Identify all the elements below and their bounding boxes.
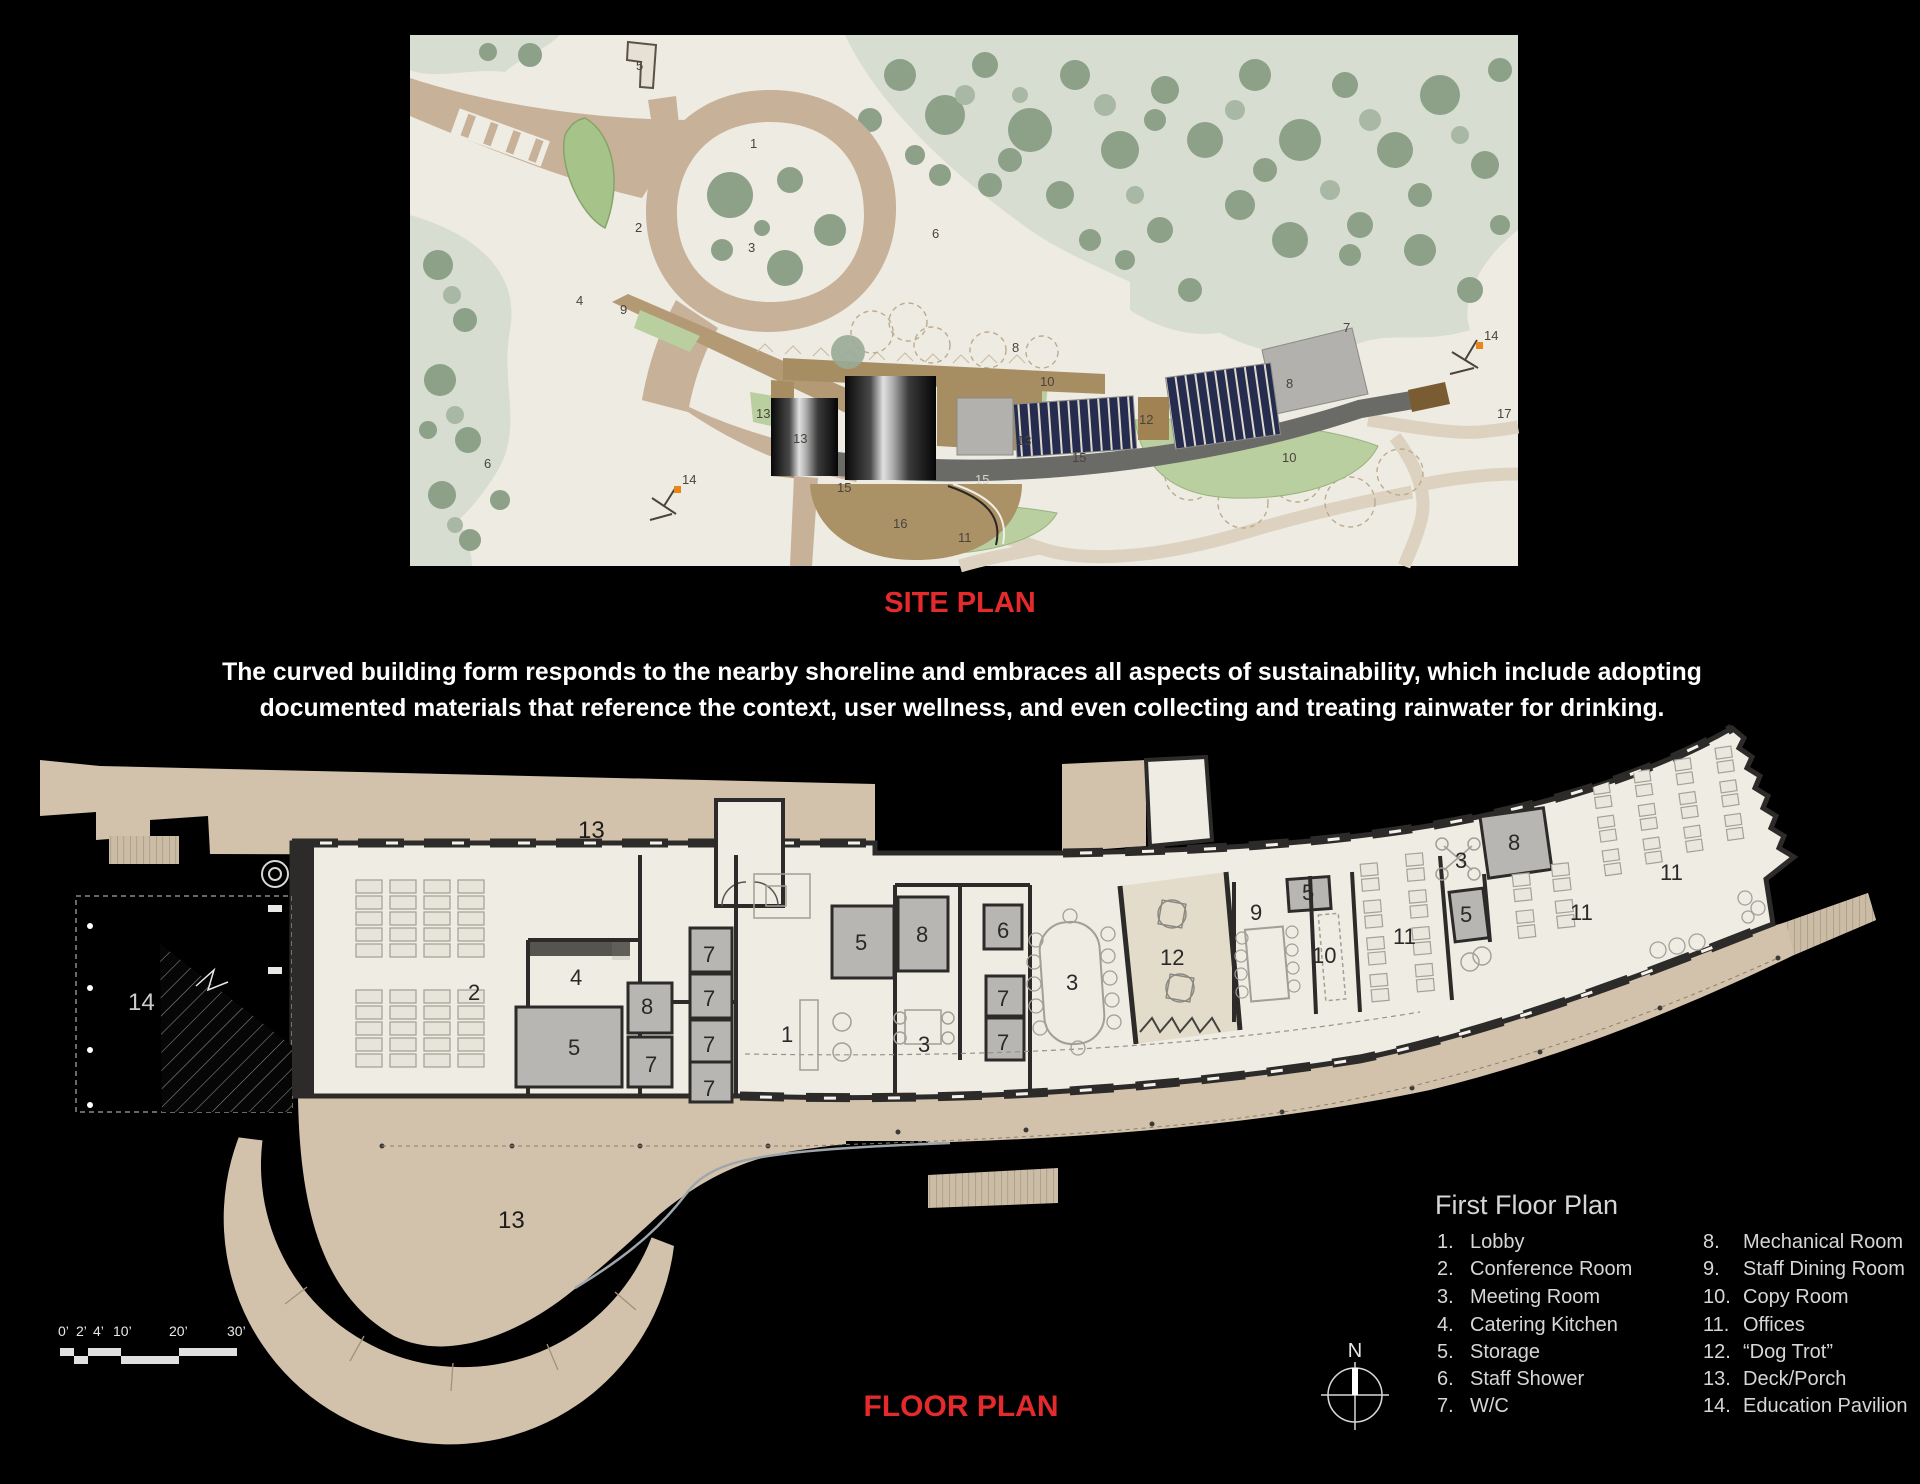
svg-text:4.: 4. [1437,1314,1454,1336]
svg-text:10: 10 [1040,374,1054,389]
svg-text:5: 5 [1302,880,1314,905]
svg-text:2.: 2. [1437,1258,1454,1280]
svg-text:8: 8 [1012,340,1019,355]
svg-text:Lobby: Lobby [1470,1231,1525,1253]
svg-text:7.: 7. [1437,1395,1454,1417]
svg-text:Conference Room: Conference Room [1470,1258,1632,1280]
svg-text:8: 8 [1286,376,1293,391]
svg-text:7: 7 [645,1052,657,1077]
svg-text:First Floor Plan: First Floor Plan [1435,1190,1618,1220]
svg-text:12.: 12. [1703,1341,1731,1363]
svg-text:12: 12 [1139,412,1153,427]
svg-text:13: 13 [793,431,807,446]
svg-text:17: 17 [1497,406,1511,421]
svg-text:5.: 5. [1437,1341,1454,1363]
svg-text:0’: 0’ [58,1323,69,1339]
svg-text:Deck/Porch: Deck/Porch [1743,1368,1846,1390]
svg-text:Staff Dining Room: Staff Dining Room [1743,1258,1905,1280]
svg-text:3: 3 [1455,848,1467,873]
svg-text:7: 7 [703,1076,715,1101]
svg-text:“Dog Trot”: “Dog Trot” [1743,1341,1833,1363]
svg-text:1: 1 [750,136,757,151]
svg-text:13.: 13. [1703,1368,1731,1390]
svg-text:3: 3 [748,240,755,255]
svg-text:20’: 20’ [169,1323,188,1339]
svg-text:7: 7 [703,1032,715,1057]
svg-text:SITE PLAN: SITE PLAN [884,587,1035,619]
svg-text:3.: 3. [1437,1286,1454,1308]
svg-text:11: 11 [958,530,972,545]
svg-text:13: 13 [756,406,770,421]
svg-text:Offices: Offices [1743,1314,1805,1336]
svg-text:Mechanical Room: Mechanical Room [1743,1231,1903,1253]
svg-text:3: 3 [1066,970,1078,995]
svg-text:11.: 11. [1703,1314,1729,1336]
svg-text:9: 9 [620,302,627,317]
svg-text:Staff Shower: Staff Shower [1470,1368,1584,1390]
svg-text:1: 1 [781,1022,793,1047]
svg-text:8: 8 [916,922,928,947]
svg-text:7: 7 [1343,320,1350,335]
svg-text:Catering Kitchen: Catering Kitchen [1470,1314,1618,1336]
svg-text:6.: 6. [1437,1368,1454,1390]
svg-text:5: 5 [1460,902,1472,927]
svg-text:5: 5 [855,930,867,955]
svg-text:10’: 10’ [113,1323,132,1339]
svg-text:documented materials that refe: documented materials that reference the … [260,695,1665,722]
svg-text:14.: 14. [1703,1395,1731,1417]
svg-text:6: 6 [997,918,1009,943]
svg-text:14: 14 [1484,328,1498,343]
svg-text:15: 15 [1072,450,1086,465]
svg-text:4: 4 [570,965,582,990]
svg-text:6: 6 [484,456,491,471]
svg-text:10: 10 [1282,450,1296,465]
svg-text:8.: 8. [1703,1231,1720,1253]
svg-text:4: 4 [576,293,583,308]
svg-text:9.: 9. [1703,1258,1720,1280]
svg-text:30’: 30’ [227,1323,246,1339]
svg-text:Copy Room: Copy Room [1743,1286,1849,1308]
svg-text:6: 6 [932,226,939,241]
svg-text:8: 8 [1508,830,1520,855]
svg-text:10: 10 [1312,943,1336,968]
svg-text:13: 13 [498,1207,525,1234]
svg-text:12: 12 [1160,945,1184,970]
svg-text:7: 7 [703,986,715,1011]
svg-text:13: 13 [1017,433,1031,448]
svg-text:2: 2 [468,980,480,1005]
svg-text:15: 15 [975,472,989,487]
svg-text:11: 11 [1570,900,1593,925]
svg-text:9: 9 [1250,900,1262,925]
svg-text:15: 15 [837,480,851,495]
svg-text:7: 7 [703,942,715,967]
svg-text:Meeting Room: Meeting Room [1470,1286,1600,1308]
svg-text:N: N [1348,1340,1362,1362]
svg-text:Storage: Storage [1470,1341,1540,1363]
svg-text:11: 11 [1393,924,1416,949]
svg-text:FLOOR PLAN: FLOOR PLAN [864,1390,1059,1423]
svg-text:5: 5 [636,58,643,73]
svg-text:14: 14 [128,989,155,1016]
svg-text:11: 11 [1660,860,1683,885]
svg-text:4’: 4’ [93,1323,104,1339]
svg-text:5: 5 [568,1035,580,1060]
svg-text:2’: 2’ [76,1323,87,1339]
svg-text:10.: 10. [1703,1286,1731,1308]
svg-text:2: 2 [635,220,642,235]
svg-text:The curved building form respo: The curved building form responds to the… [222,659,1702,686]
svg-text:1.: 1. [1437,1231,1454,1253]
svg-text:7: 7 [997,986,1009,1011]
svg-text:7: 7 [997,1030,1009,1055]
svg-text:14: 14 [682,472,696,487]
svg-text:16: 16 [893,516,907,531]
svg-text:3: 3 [918,1032,930,1057]
svg-text:Education Pavilion: Education Pavilion [1743,1395,1908,1417]
svg-text:8: 8 [641,994,653,1019]
svg-text:W/C: W/C [1470,1395,1509,1417]
